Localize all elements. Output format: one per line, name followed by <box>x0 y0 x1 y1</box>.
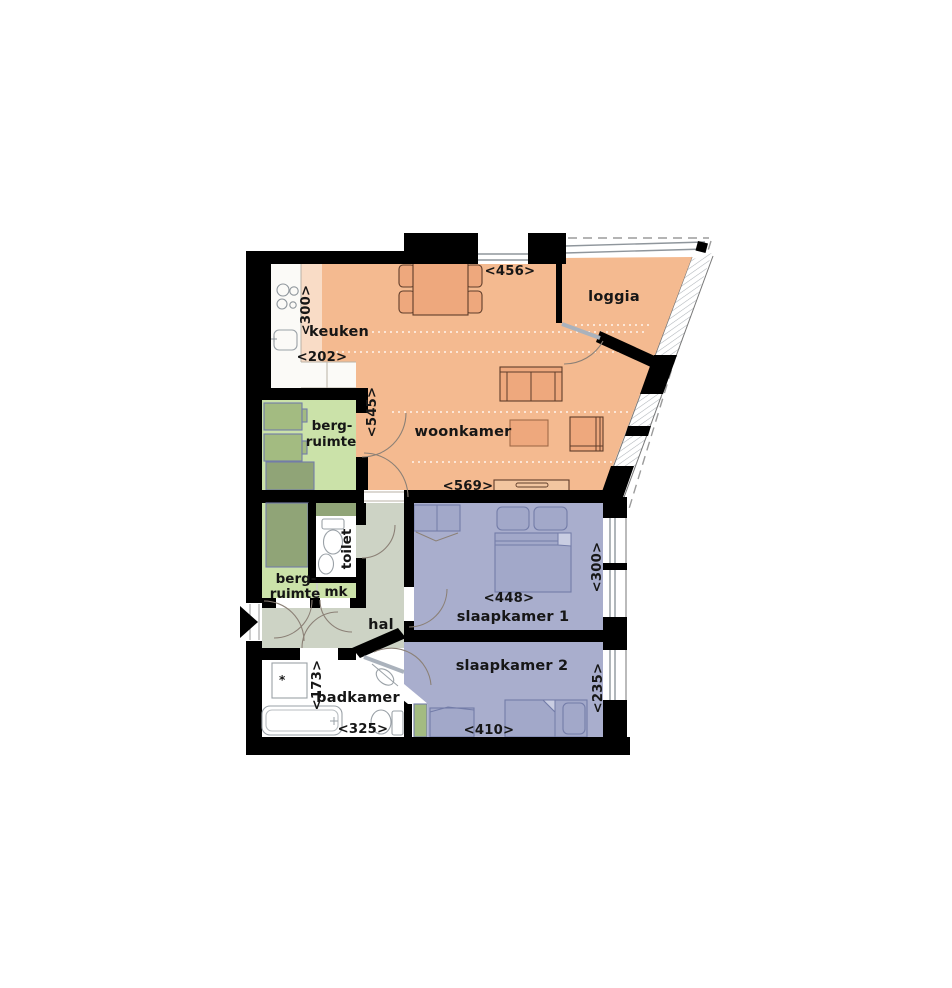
sofa <box>500 367 562 401</box>
label-keuken: keuken <box>309 324 369 340</box>
dim-woonkamer-left: <545> <box>365 387 380 438</box>
dim-woonkamer-bottom: <569> <box>443 479 494 494</box>
dim-woonkamer-top: <456> <box>485 264 536 279</box>
bedroom-window-wall <box>603 497 627 737</box>
coffee-table <box>510 420 548 446</box>
label-bergruimte2-line1: berg- <box>276 571 317 587</box>
bedroom-divider-wall <box>404 630 604 642</box>
label-mk: mk <box>324 584 348 600</box>
dim-slaapkamer2-depth: <235> <box>591 663 606 714</box>
label-badkamer: badkamer <box>316 690 400 706</box>
label-woonkamer: woonkamer <box>415 424 513 440</box>
label-hal: hal <box>368 617 394 633</box>
label-bergruimte1-line2: ruimte <box>306 434 357 450</box>
shower-drain-icon: * <box>279 673 286 687</box>
top-walls <box>262 233 566 264</box>
bed-slaapkamer-2 <box>505 700 587 737</box>
dim-slaapkamer1-depth: <300> <box>590 542 605 593</box>
label-bergruimte2-line2: ruimte <box>270 586 321 602</box>
dim-badkamer-depth: <173> <box>310 660 325 711</box>
dim-slaapkamer1-width: <448> <box>484 591 535 606</box>
floor-plan-page: * keuken loggia woonkamer berg- ruimte b… <box>0 0 952 988</box>
dim-keuken-width: <300> <box>299 285 314 336</box>
armchair <box>570 417 603 451</box>
label-loggia: loggia <box>588 289 640 305</box>
bottom-wall <box>246 737 630 755</box>
dim-badkamer-width: <325> <box>338 722 389 737</box>
label-bergruimte1-line1: berg- <box>312 418 353 434</box>
label-toilet: toilet <box>339 528 355 569</box>
dim-slaapkamer2-width: <410> <box>464 723 515 738</box>
label-slaapkamer1: slaapkamer 1 <box>457 609 570 625</box>
label-slaapkamer2: slaapkamer 2 <box>456 658 569 674</box>
entrance-arrow-icon <box>240 606 258 638</box>
floor-plan-svg: * keuken loggia woonkamer berg- ruimte b… <box>0 0 952 988</box>
dim-keuken-depth: <202> <box>297 350 348 365</box>
loggia-top-glazing <box>565 239 708 256</box>
